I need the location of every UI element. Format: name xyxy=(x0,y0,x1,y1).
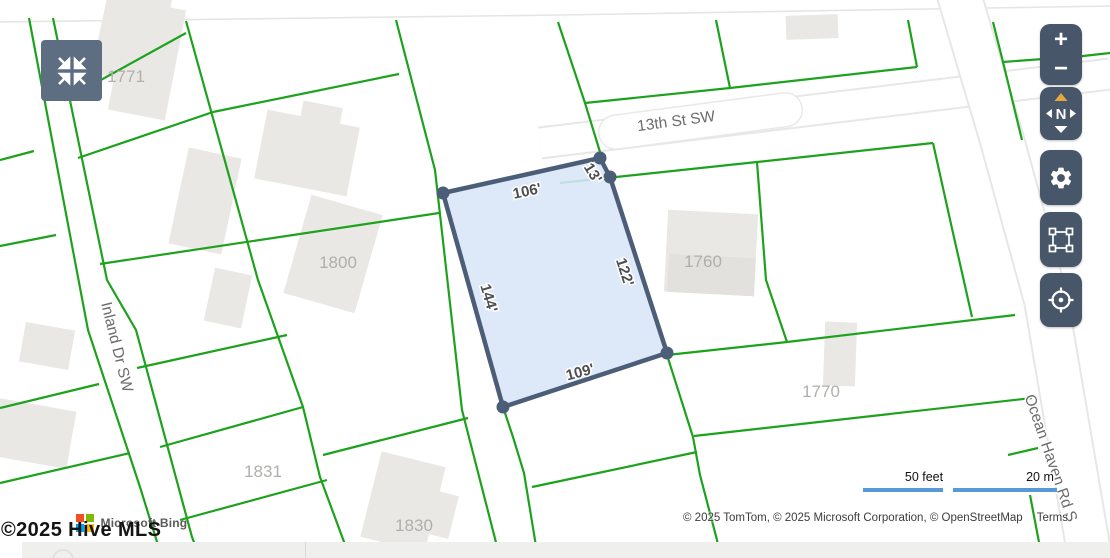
map-attribution: © 2025 TomTom, © 2025 Microsoft Corporat… xyxy=(683,512,1068,524)
bottom-bar-divider xyxy=(305,542,306,558)
parcel-number-1831: 1831 xyxy=(244,462,282,481)
terms-link[interactable]: Terms xyxy=(1037,512,1068,524)
scale-meters-label: 20 m xyxy=(1026,470,1054,484)
street-label-inland: Inland Dr SW xyxy=(97,300,136,394)
draw-parcel-tool-button[interactable] xyxy=(1040,212,1082,267)
settings-button[interactable] xyxy=(1040,150,1082,205)
locate-me-button[interactable] xyxy=(1040,273,1082,327)
parcel-number-1771: 1771 xyxy=(107,67,145,86)
copyright-text: © 2025 TomTom, © 2025 Microsoft Corporat… xyxy=(683,512,1023,524)
compass-north-arrow-icon[interactable] xyxy=(1055,93,1068,101)
parcel-number-1760: 1760 xyxy=(684,252,722,271)
collapse-arrows-icon xyxy=(55,54,89,88)
scale-bar: 50 feet 20 m xyxy=(863,470,1057,490)
vertex-handle[interactable] xyxy=(661,347,674,360)
highlighted-parcel[interactable]: 106' 13' 122' 109' 144' xyxy=(437,152,674,414)
parcel-number-1770: 1770 xyxy=(802,382,840,401)
collapse-button[interactable] xyxy=(41,40,102,101)
bottom-bar xyxy=(22,542,1110,558)
zoom-in-button[interactable]: + xyxy=(1054,29,1068,51)
selection-rectangle-icon xyxy=(1046,225,1076,255)
compass-n-label: N xyxy=(1056,106,1067,123)
gear-icon xyxy=(1048,165,1074,191)
compass-rotate-left-icon[interactable] xyxy=(1046,109,1052,118)
scale-feet-label: 50 feet xyxy=(905,470,944,484)
vertex-handle[interactable] xyxy=(497,401,510,414)
parcel-number-1830: 1830 xyxy=(395,516,433,535)
map-viewport: 106' 13' 122' 109' 144' 13th St SW Inlan… xyxy=(0,0,1110,558)
zoom-control[interactable]: + − xyxy=(1040,24,1082,85)
hive-mls-watermark: ©2025 Hive MLS xyxy=(1,519,161,542)
zoom-out-button[interactable]: − xyxy=(1054,58,1068,80)
vertex-handle[interactable] xyxy=(437,187,450,200)
bottom-bar-knob xyxy=(52,549,74,558)
crosshair-target-icon xyxy=(1046,285,1076,315)
compass-rotate-right-icon[interactable] xyxy=(1070,109,1076,118)
parcel-number-1800: 1800 xyxy=(319,253,357,272)
compass-tilt-icon[interactable] xyxy=(1055,126,1068,133)
compass-control[interactable]: N xyxy=(1040,87,1082,140)
map-canvas[interactable]: 106' 13' 122' 109' 144' 13th St SW Inlan… xyxy=(0,0,1110,558)
